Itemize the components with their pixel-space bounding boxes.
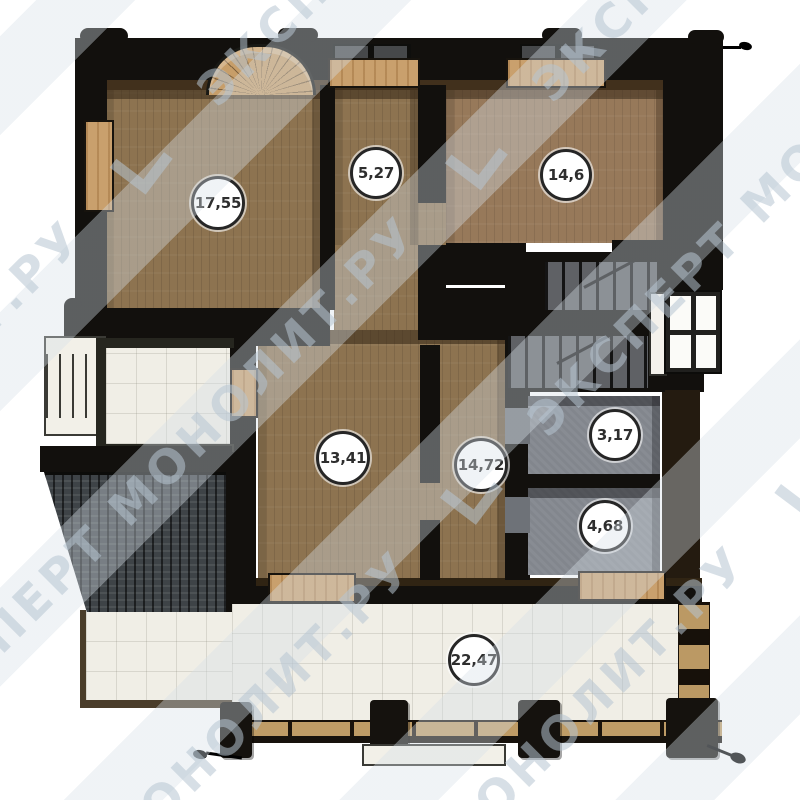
room-area-label-bedroom: 14,6 [540,149,592,201]
window-sill [328,58,420,88]
wall-pilaster [688,30,724,44]
dimension-marker-dot [729,751,747,766]
dimension-marker-dot [192,749,207,760]
entry-door-threshold [230,368,258,418]
wall-pilaster [278,28,318,42]
railing-post [518,700,560,758]
wall-pilaster [542,28,582,42]
door-opening [418,198,446,248]
outer-wall-right-upper [663,38,723,290]
stair-flight-lower [508,336,648,388]
window-sill-bottom [268,573,356,603]
vestibule-wall-top [96,338,234,348]
wall-hallway-bedroom [418,85,446,203]
stair-cut-line [556,336,648,365]
room-area-label-wc: 3,17 [589,409,641,461]
wall-living-hallway [320,85,335,310]
stair-landing [518,310,650,336]
window-sill-bottom [578,571,666,601]
window-pane [670,296,691,330]
wall-hall-divider-lower [420,520,440,580]
wall-stub [418,245,446,293]
window-sill [506,58,606,88]
floor-porch-left [86,612,232,702]
stair-cut-line [583,262,657,289]
floor-corridor [334,245,418,333]
room-area-label-bathroom: 4,68 [579,500,631,552]
room-area-label-hallway: 5,27 [350,147,402,199]
porch-wall-bottom [80,700,236,708]
room-area-label-terrace: 22,47 [448,634,500,686]
watermark-logo-icon [774,457,800,520]
wall-bathroom-divider [528,474,660,488]
door-opening-wc [505,408,530,444]
wall-hall-divider [420,345,440,483]
window-pane [696,296,717,330]
door-opening-bathroom [505,497,530,533]
railing-post [220,702,252,758]
room-area-label-room: 13,41 [316,431,370,485]
room-area-label-living: 17,55 [191,176,245,230]
watermark-logo-icon [770,792,800,800]
outer-wall-right-lower [662,390,700,582]
vestibule-wall-left [96,338,106,452]
room-area-label-hall: 14,72 [454,438,508,492]
floor-vestibule [106,348,230,444]
window-pane [696,335,717,369]
terrace-entry-steps [362,744,506,766]
floor-plan: 17,55 5,27 14,6 3,17 4,68 13,41 14,72 22… [0,0,800,800]
stair-window [664,290,722,374]
window-pane [670,335,691,369]
stair-flight-upper [545,262,657,310]
railing-base-line [226,736,722,743]
canopy-roof [44,472,226,615]
window-sill-left [84,120,114,212]
dimension-marker-dot [738,41,752,52]
canopy-beam [40,446,232,472]
railing-post [666,698,718,758]
wall-pilaster [80,28,128,44]
